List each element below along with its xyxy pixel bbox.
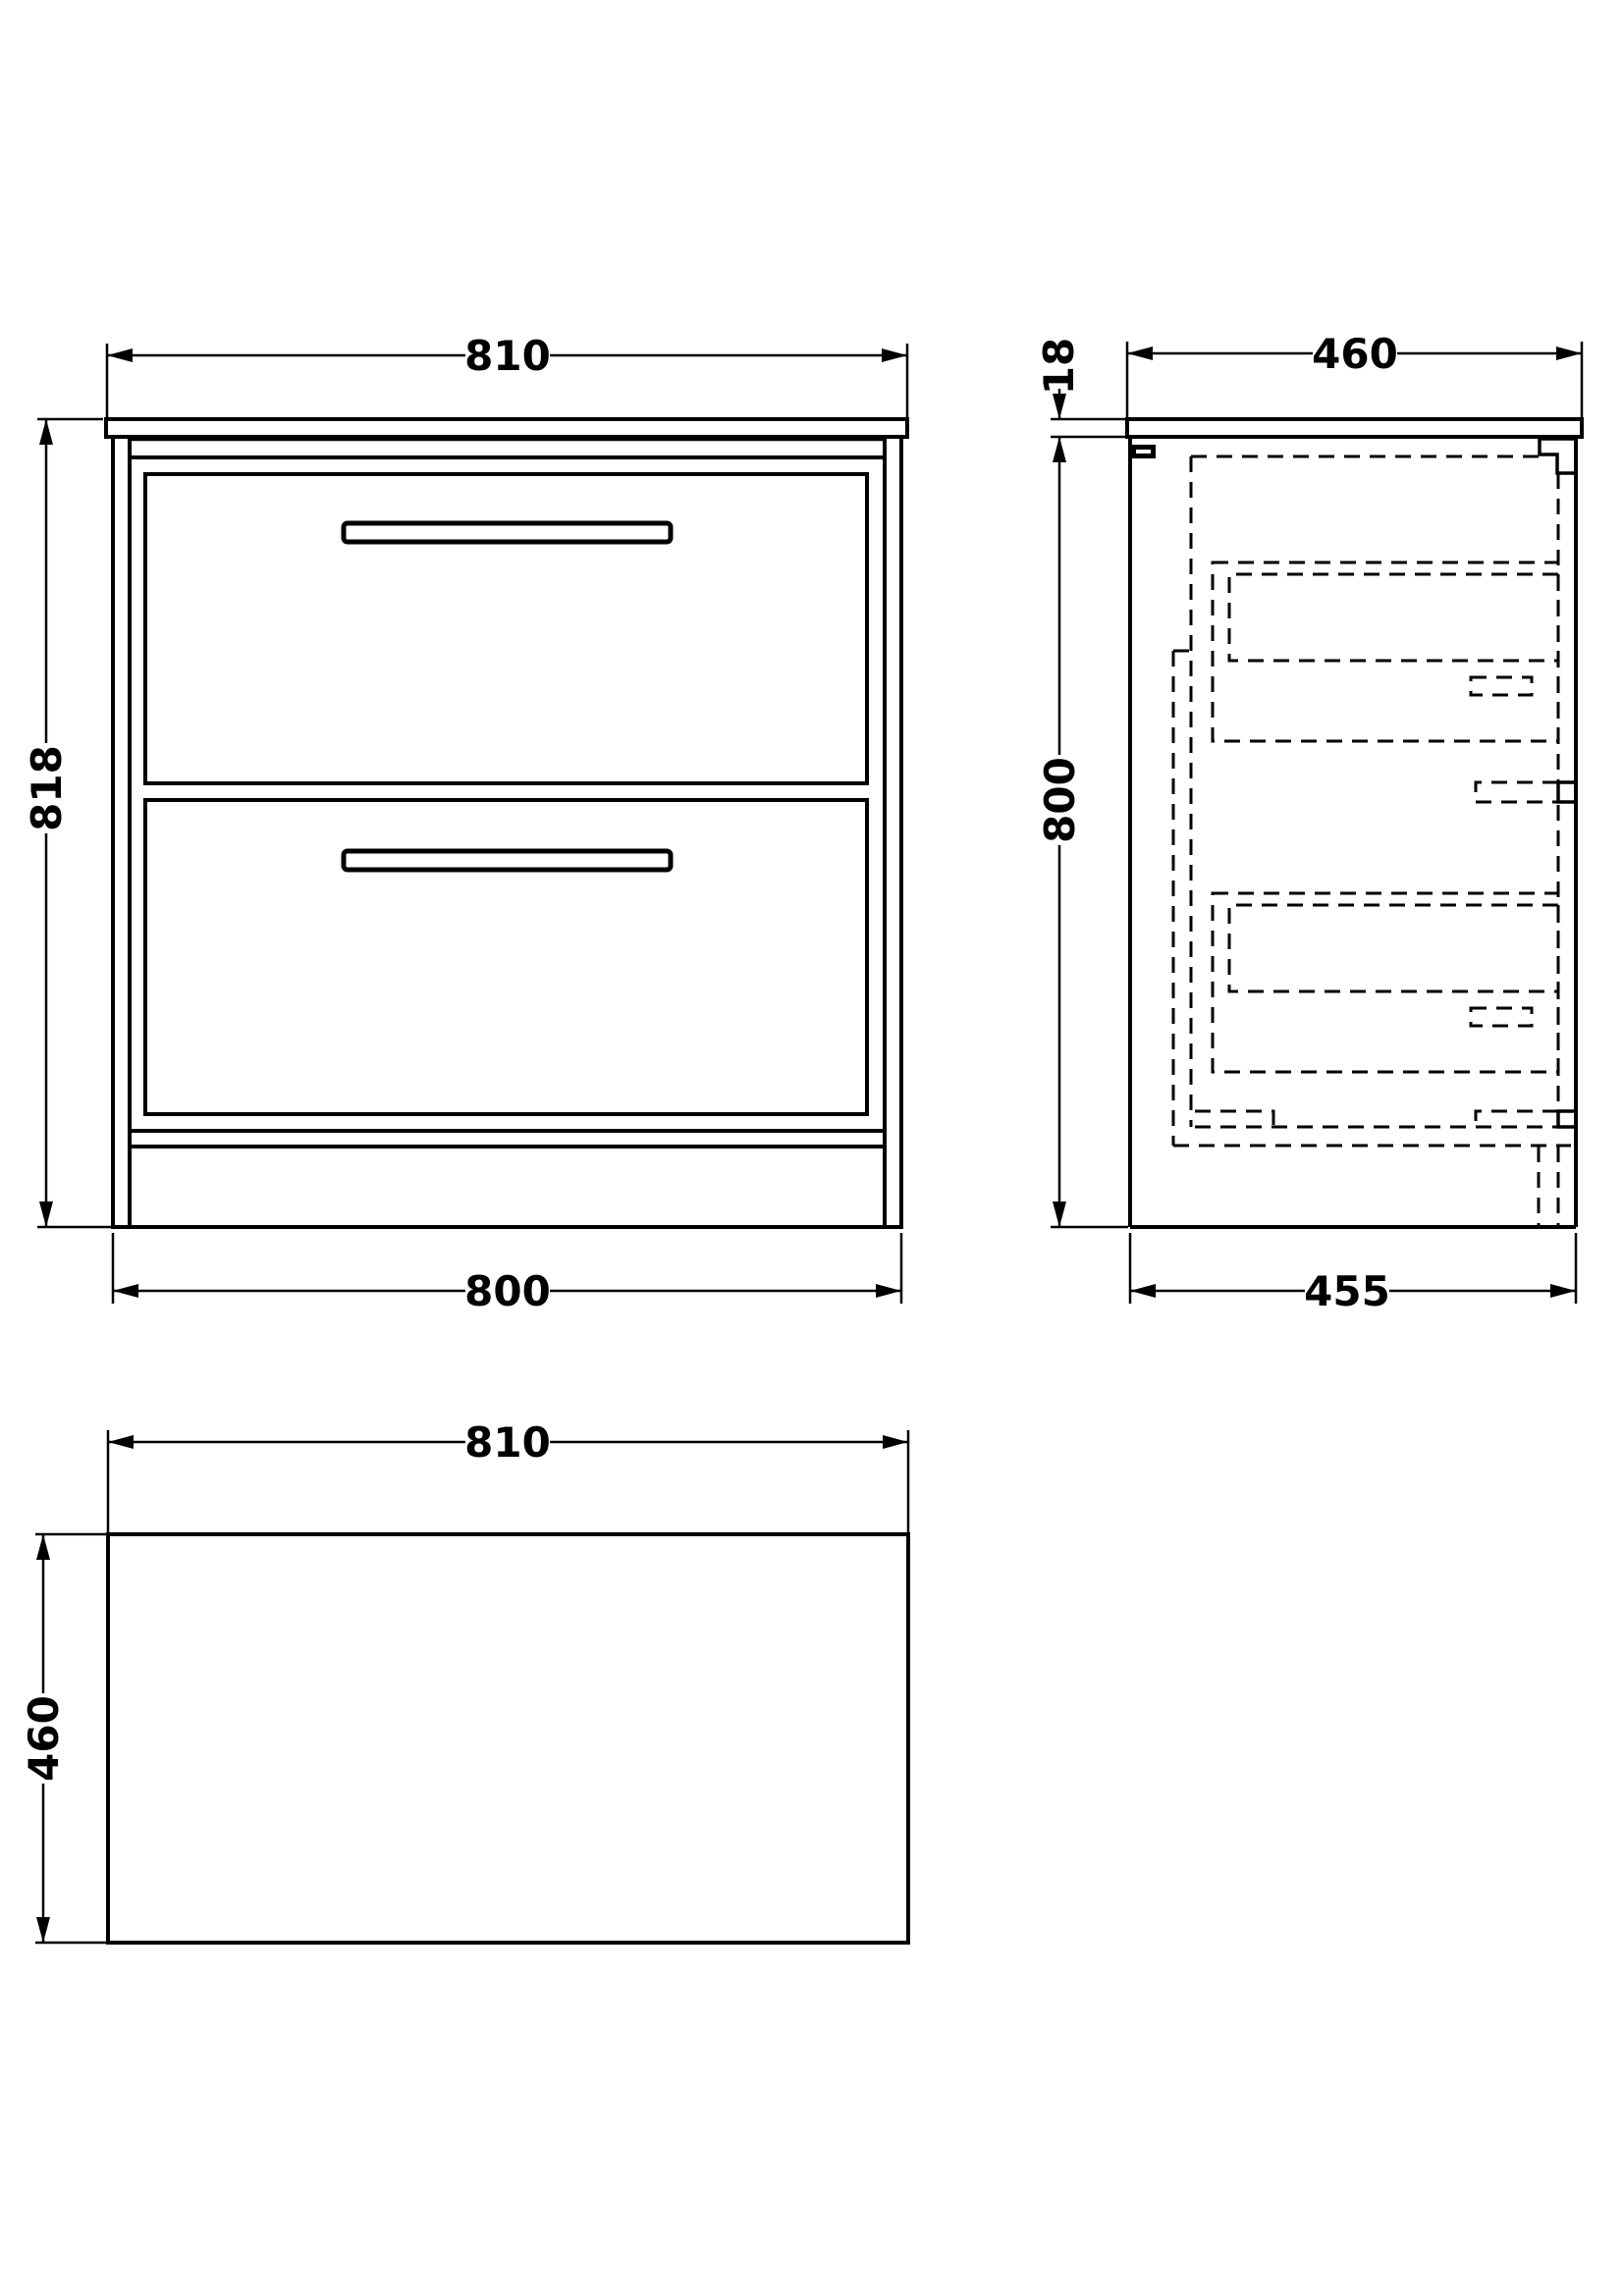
side-upper-drawer-runner xyxy=(1471,677,1532,695)
arrowhead-left xyxy=(1127,347,1153,360)
dim-label-front-cabinet-width: 800 xyxy=(464,1267,551,1315)
arrowhead-bottom xyxy=(36,1917,50,1943)
front-drawer-bottom-handle xyxy=(344,851,671,870)
side-hidden-structure xyxy=(1173,456,1576,1227)
arrowhead-top xyxy=(39,419,53,445)
dim-label-side-cabinet-height: 800 xyxy=(1036,757,1084,843)
side-lower-drawer-inner xyxy=(1229,905,1558,991)
plan-dim-counter-width: 810 xyxy=(108,1418,908,1532)
front-dim-cabinet-width: 800 xyxy=(113,1233,901,1315)
plan-view: 810 460 xyxy=(20,1418,908,1943)
side-countertop xyxy=(1127,419,1582,437)
dim-label-side-cabinet-depth: 455 xyxy=(1304,1267,1390,1315)
dim-label-plan-counter-depth: 460 xyxy=(20,1695,68,1782)
arrowhead-down xyxy=(1053,394,1066,419)
arrowhead-right xyxy=(876,1284,901,1298)
arrowhead-left xyxy=(1130,1284,1156,1298)
front-drawer-top xyxy=(145,474,867,783)
side-front-top-step xyxy=(1540,439,1576,473)
side-dim-cabinet-depth: 455 xyxy=(1130,1233,1576,1315)
front-dim-overall-height: 818 xyxy=(23,419,111,1227)
front-countertop xyxy=(106,419,907,437)
front-dim-counter-width: 810 xyxy=(107,332,907,418)
arrowhead-right xyxy=(1550,1284,1576,1298)
side-dim-counter-depth: 460 xyxy=(1127,330,1582,418)
arrowhead-left xyxy=(108,1435,134,1449)
arrowhead-bottom xyxy=(39,1201,53,1227)
dim-label-plan-counter-width: 810 xyxy=(464,1418,551,1467)
arrowhead-bottom xyxy=(1053,1201,1066,1227)
arrowhead-left xyxy=(113,1284,138,1298)
side-dim-cabinet-height: 800 xyxy=(1036,437,1128,1227)
side-lower-drawer-box xyxy=(1213,893,1558,1072)
side-mid-rail xyxy=(1558,782,1576,802)
arrowhead-left xyxy=(107,348,133,362)
side-dim-counter-thickness: 18 xyxy=(1035,338,1125,462)
drawing-sheet: 810 818 800 xyxy=(0,0,1623,2296)
front-cabinet-body xyxy=(113,437,901,1227)
side-wall-bracket-icon xyxy=(1131,445,1156,458)
vanity-technical-drawing: 810 818 800 xyxy=(0,0,1623,2296)
arrowhead-top xyxy=(36,1534,50,1560)
front-elevation-view: 810 818 800 xyxy=(23,332,907,1315)
side-mid-runner xyxy=(1476,782,1558,802)
front-drawer-top-handle xyxy=(344,523,671,542)
side-lower-drawer-runner xyxy=(1471,1008,1532,1026)
dim-label-side-counter-thickness: 18 xyxy=(1035,338,1083,395)
dim-label-front-overall-height: 818 xyxy=(23,745,71,831)
side-upper-drawer-box xyxy=(1213,562,1558,741)
arrowhead-right xyxy=(882,348,907,362)
side-bottom-rail xyxy=(1558,1111,1576,1127)
side-upper-drawer-inner xyxy=(1229,574,1558,661)
dim-label-front-counter-width: 810 xyxy=(464,332,551,380)
arrowhead-right xyxy=(883,1435,908,1449)
dim-label-side-counter-depth: 460 xyxy=(1312,330,1398,378)
front-drawer-bottom xyxy=(145,800,867,1114)
plan-dim-counter-depth: 460 xyxy=(20,1534,106,1943)
side-bottom-front-runner xyxy=(1476,1111,1558,1127)
side-bottom-back-runner xyxy=(1195,1111,1273,1127)
arrowhead-right xyxy=(1556,347,1582,360)
plan-countertop-outline xyxy=(108,1534,908,1943)
side-section-view: 460 18 800 455 xyxy=(1035,330,1582,1315)
